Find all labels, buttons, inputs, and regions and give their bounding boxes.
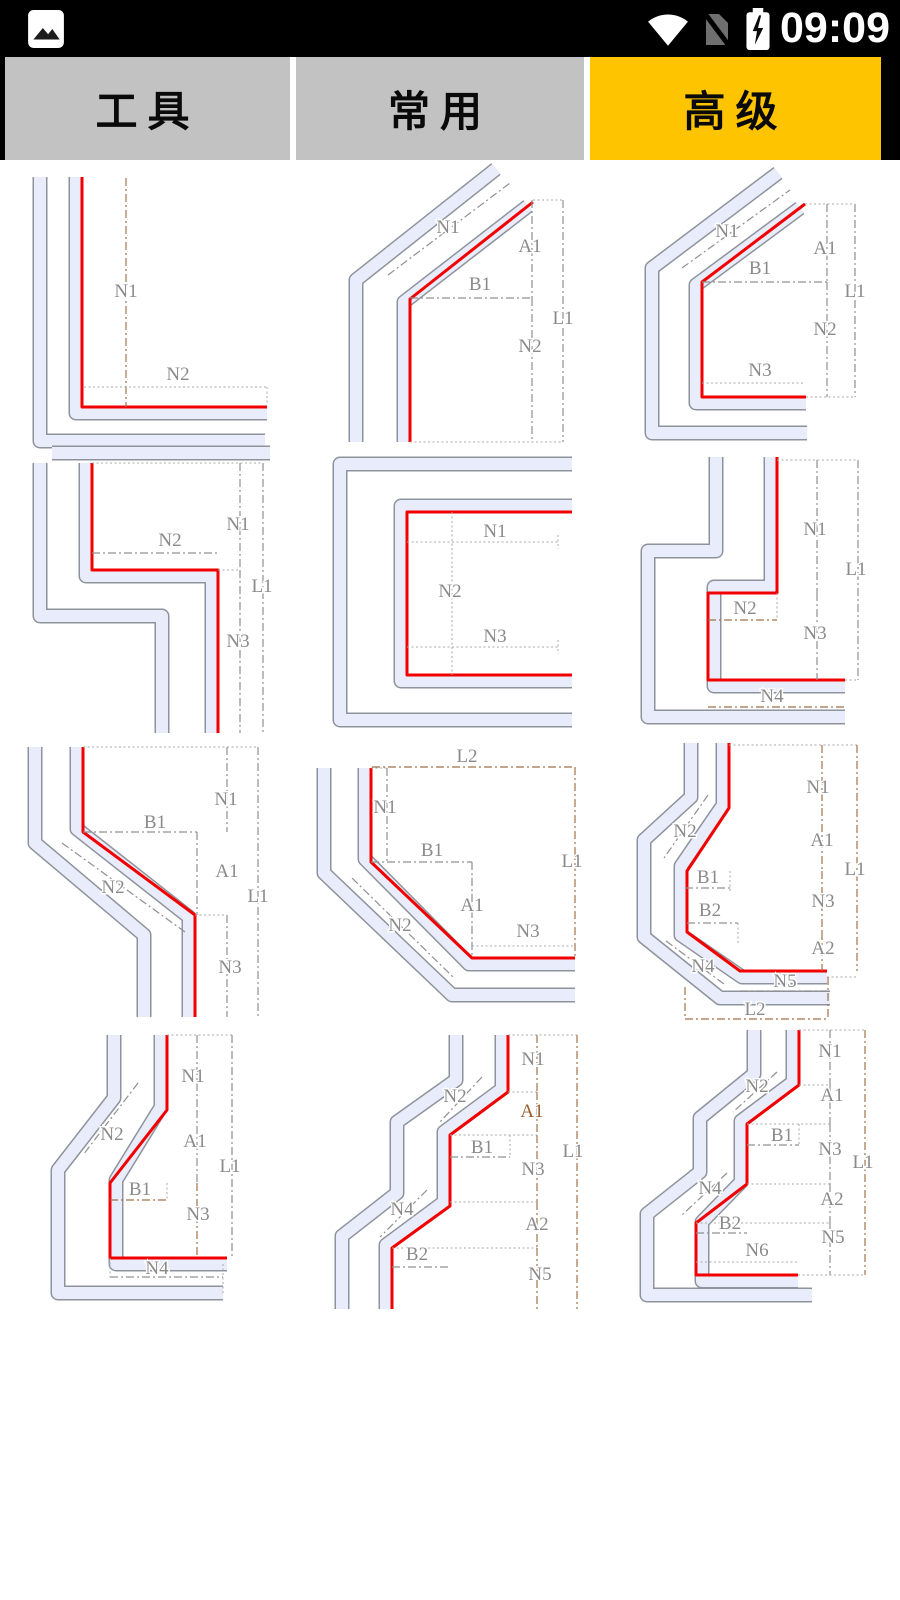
dim-label-B1: B1 xyxy=(749,258,771,279)
dim-label-N1: N1 xyxy=(818,1041,841,1062)
dim-label-N1: N1 xyxy=(521,1049,544,1070)
dim-label-B1: B1 xyxy=(471,1137,493,1158)
dim-label-N4: N4 xyxy=(390,1199,414,1220)
dim-label-A1: A1 xyxy=(810,830,833,851)
dim-label-N3: N3 xyxy=(521,1159,544,1180)
profile-ghost xyxy=(40,463,162,733)
dim-label-B1: B1 xyxy=(129,1179,151,1200)
dim-label-N3: N3 xyxy=(803,623,826,644)
dim-label-L1: L1 xyxy=(247,886,268,907)
wifi-icon xyxy=(647,11,689,47)
dim-label-N6: N6 xyxy=(745,1240,768,1261)
no-sim-icon xyxy=(698,9,736,49)
dim-label-L1: L1 xyxy=(561,851,582,872)
bend-line xyxy=(410,202,533,442)
dimension-labels: N1N2A1B1L1N3N4A2B2N5 xyxy=(390,1049,583,1285)
dim-label-N2: N2 xyxy=(158,530,181,551)
dim-label-L1: L1 xyxy=(845,559,866,580)
dim-label-B1: B1 xyxy=(144,812,166,833)
dimension-lines xyxy=(92,463,263,733)
diagram-double-bend-offset[interactable]: N1N2A1L1B1N3B2A2N4N5L2 xyxy=(600,725,900,1025)
dim-label-B1: B1 xyxy=(469,274,491,295)
battery-charging-icon xyxy=(745,8,771,50)
bend-line xyxy=(708,457,845,680)
tab-advanced[interactable]: 高级 xyxy=(590,57,881,160)
dim-label-N1: N1 xyxy=(373,797,396,818)
dim-label-N2: N2 xyxy=(100,1124,123,1145)
diagram-offset-bottom-flange[interactable]: N1N2A1L1B1N3N4 xyxy=(0,1025,300,1325)
dim-label-N1: N1 xyxy=(715,221,738,242)
dimension-lines xyxy=(388,183,563,442)
dim-label-N2: N2 xyxy=(733,598,756,619)
dim-label-B2: B2 xyxy=(406,1244,428,1265)
dim-label-L1: L1 xyxy=(562,1141,583,1162)
dim-label-N4: N4 xyxy=(760,686,784,707)
dim-label-L1: L1 xyxy=(844,859,865,880)
dim-label-N3: N3 xyxy=(186,1204,209,1225)
dim-label-N2: N2 xyxy=(745,1076,768,1097)
profile-main xyxy=(77,747,189,1017)
dim-label-N5: N5 xyxy=(821,1227,844,1248)
dim-label-N3: N3 xyxy=(748,360,771,381)
dim-label-A2: A2 xyxy=(811,938,834,959)
status-icons: 09:09 xyxy=(647,0,890,57)
dim-label-N2: N2 xyxy=(101,877,124,898)
diagram-offset-flange[interactable]: L2N1B1N2A1L1N3 xyxy=(300,725,600,1025)
dim-label-N4: N4 xyxy=(145,1258,169,1279)
dim-label-A1: A1 xyxy=(215,861,238,882)
dim-label-N4: N4 xyxy=(691,956,715,977)
dimension-labels: N1N2N3 xyxy=(438,521,506,647)
photo-icon xyxy=(27,9,65,49)
dim-label-N1: N1 xyxy=(114,281,137,302)
dim-label-N1: N1 xyxy=(483,521,506,542)
dim-label-B1: B1 xyxy=(697,867,719,888)
dim-label-N3: N3 xyxy=(516,921,539,942)
dim-label-B1: B1 xyxy=(421,840,443,861)
dim-label-N2: N2 xyxy=(166,364,189,385)
diagram-z-step[interactable]: N1N2L1N3 xyxy=(0,445,300,735)
tab-tools[interactable]: 工具 xyxy=(5,57,290,160)
dim-label-L2: L2 xyxy=(456,746,477,767)
dim-label-N5: N5 xyxy=(528,1264,551,1285)
diagram-double-z-bottom-flange[interactable]: N1N2A1B1N3L1N4A2B2N5N6 xyxy=(600,1025,900,1325)
diagram-l-bend[interactable]: N1N2 xyxy=(0,160,300,450)
dim-label-L2: L2 xyxy=(744,999,765,1020)
status-bar: 09:09 xyxy=(0,0,900,57)
profile-main xyxy=(714,457,845,686)
dim-label-N2: N2 xyxy=(443,1086,466,1107)
dim-label-N3: N3 xyxy=(818,1139,841,1160)
dim-label-L1: L1 xyxy=(852,1152,873,1173)
dim-label-B2: B2 xyxy=(719,1213,741,1234)
dim-label-N2: N2 xyxy=(813,319,836,340)
dim-label-N4: N4 xyxy=(698,1178,722,1199)
dim-label-N1: N1 xyxy=(803,519,826,540)
dim-label-N1: N1 xyxy=(436,217,459,238)
dim-label-A1: A1 xyxy=(813,238,836,259)
dim-label-N2: N2 xyxy=(518,336,541,357)
diagram-z-offset[interactable]: N1B1N2A1L1N3 xyxy=(0,725,300,1025)
profile-ghost xyxy=(644,743,830,998)
dim-label-N3: N3 xyxy=(218,957,241,978)
tab-bar: 工具 常用 高级 xyxy=(0,57,900,160)
dim-label-N3: N3 xyxy=(811,891,834,912)
dim-label-A2: A2 xyxy=(820,1189,843,1210)
dim-label-A1: A1 xyxy=(520,1101,543,1122)
dim-label-N1: N1 xyxy=(806,777,829,798)
diagram-v-bend-flange[interactable]: N1A1B1L1N2N3 xyxy=(600,160,900,450)
dim-label-N3: N3 xyxy=(483,626,506,647)
dim-label-N1: N1 xyxy=(214,789,237,810)
dim-label-B1: B1 xyxy=(771,1125,793,1146)
dim-label-N5: N5 xyxy=(773,971,796,992)
dim-label-L1: L1 xyxy=(251,576,272,597)
dim-label-A1: A1 xyxy=(460,895,483,916)
dim-label-A1: A1 xyxy=(820,1085,843,1106)
dimension-labels: L2N1B1N2A1L1N3 xyxy=(373,746,582,942)
dim-label-N2: N2 xyxy=(388,915,411,936)
diagram-step-flange[interactable]: N1L1N2N3N4 xyxy=(600,445,900,735)
dim-label-N3: N3 xyxy=(226,631,249,652)
profile-main xyxy=(116,1035,227,1264)
dimension-labels: N1A1B1L1N2 xyxy=(436,217,573,357)
diagram-u-channel[interactable]: N1N2N3 xyxy=(300,445,600,735)
dim-label-B2: B2 xyxy=(699,900,721,921)
dim-label-N2: N2 xyxy=(438,581,461,602)
dim-label-L1: L1 xyxy=(552,308,573,329)
dim-label-A2: A2 xyxy=(525,1214,548,1235)
clock: 09:09 xyxy=(780,0,890,57)
dim-label-N1: N1 xyxy=(226,514,249,535)
app-screen: 09:09 工具 常用 高级 N1N2 xyxy=(0,0,900,1600)
diagram-double-z-step[interactable]: N1N2A1B1L1N3N4A2B2N5 xyxy=(300,1025,600,1325)
diagram-v-bend[interactable]: N1A1B1L1N2 xyxy=(300,160,600,450)
profile-main xyxy=(404,206,528,442)
dim-label-N2: N2 xyxy=(673,821,696,842)
dim-label-L1: L1 xyxy=(219,1156,240,1177)
tab-common[interactable]: 常用 xyxy=(296,57,584,160)
profile-main xyxy=(86,463,212,733)
dim-label-A1: A1 xyxy=(183,1131,206,1152)
profile-ghost xyxy=(35,747,144,1017)
dim-label-A1: A1 xyxy=(518,236,541,257)
dim-label-L1: L1 xyxy=(844,281,865,302)
dim-label-N1: N1 xyxy=(181,1066,204,1087)
